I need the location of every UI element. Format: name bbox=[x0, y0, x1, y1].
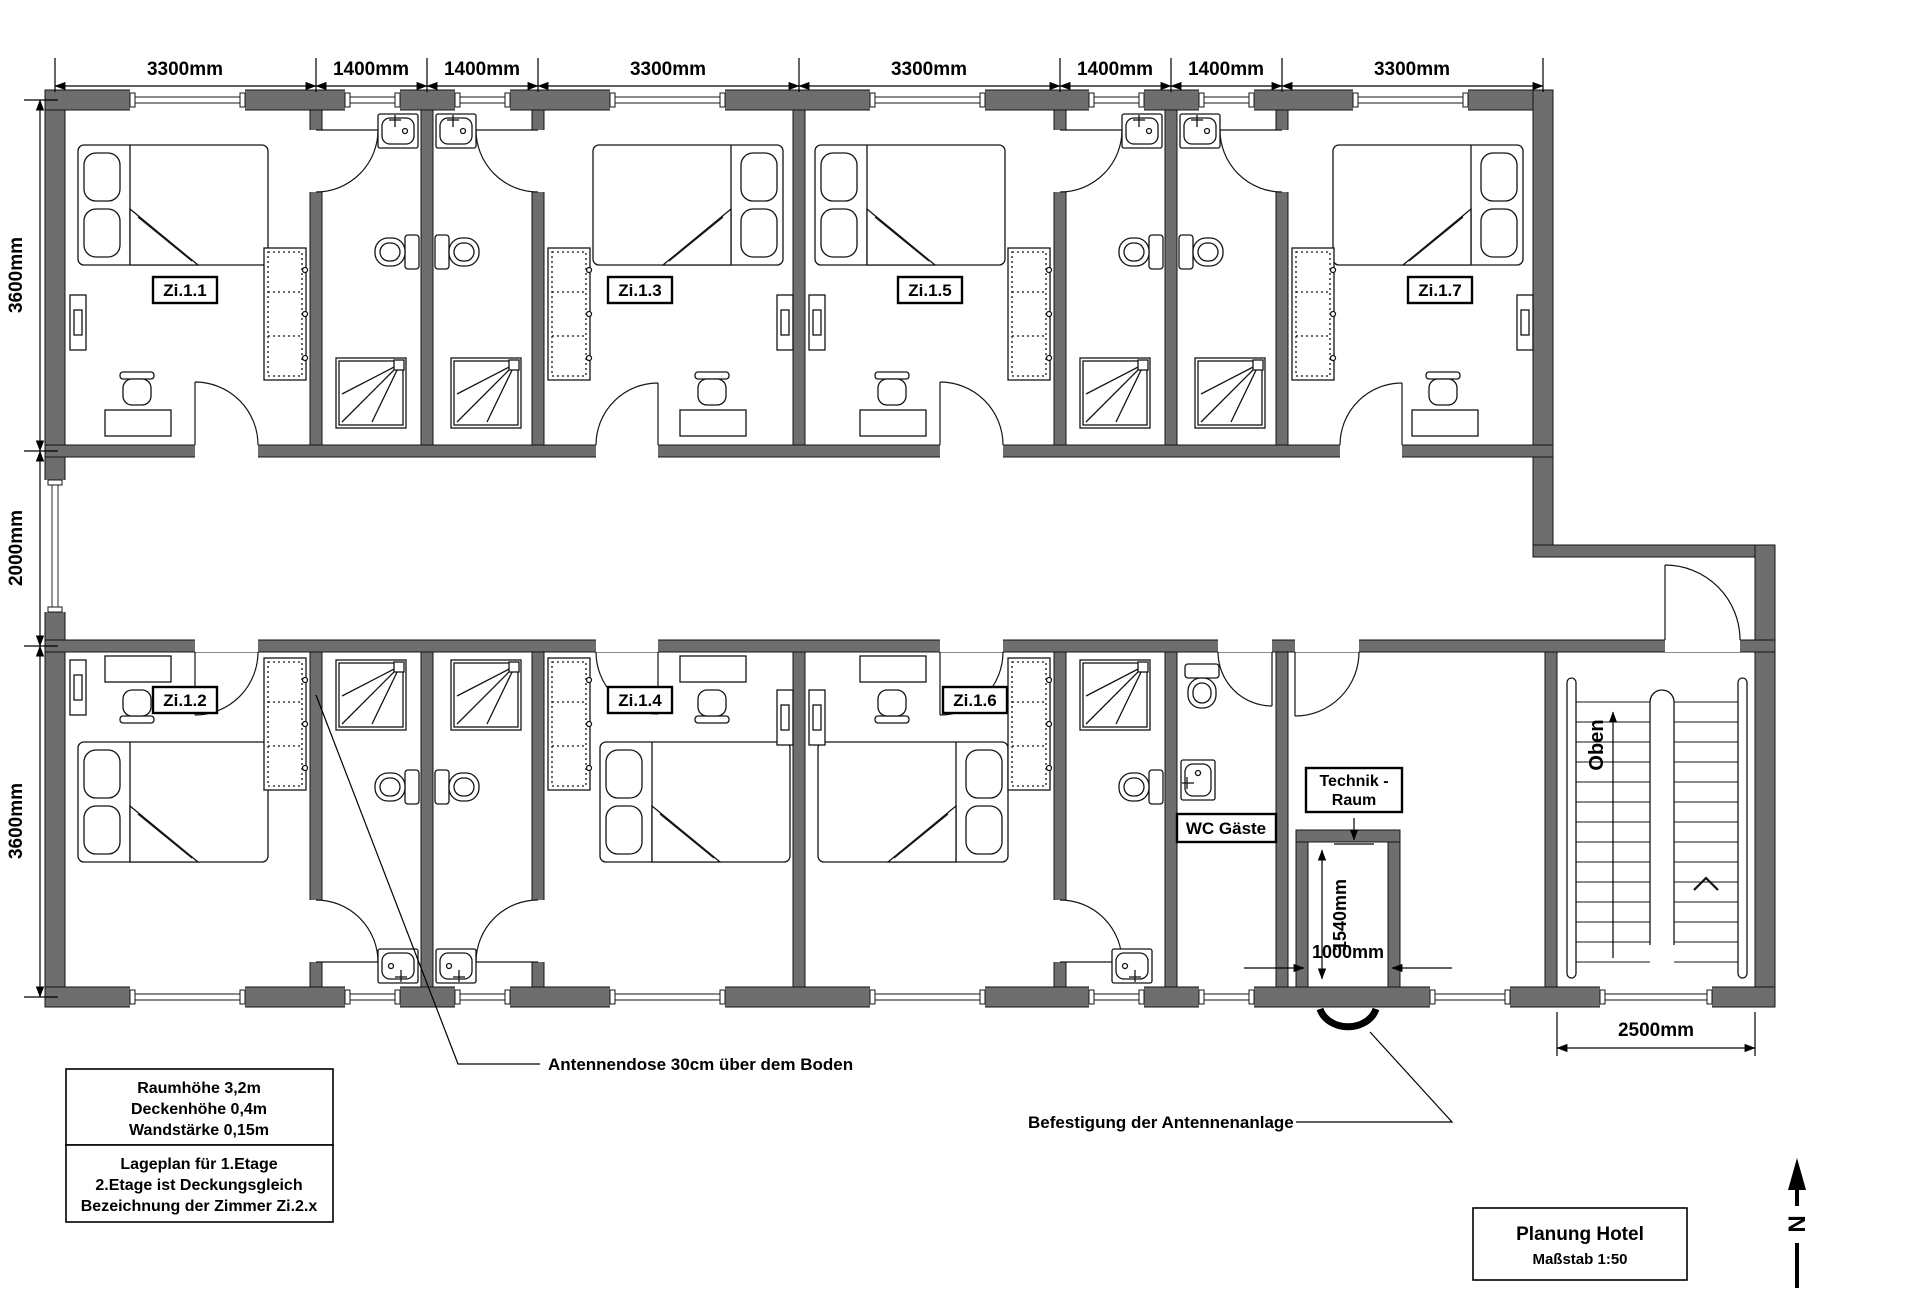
tv-board bbox=[70, 660, 86, 715]
drawing-scale: Maßstab 1:50 bbox=[1532, 1251, 1627, 1268]
tv-board bbox=[777, 690, 793, 745]
dim-left-1: 3600mm bbox=[6, 237, 27, 313]
window bbox=[610, 986, 725, 1008]
bathroom bbox=[435, 660, 521, 983]
desk bbox=[860, 410, 926, 436]
bathroom bbox=[336, 114, 419, 428]
toilet bbox=[435, 770, 479, 804]
bed bbox=[818, 742, 1008, 862]
window bbox=[1089, 986, 1144, 1008]
dim-top-5: 3300mm bbox=[891, 59, 967, 80]
bed bbox=[815, 145, 1005, 265]
window bbox=[455, 89, 510, 111]
window bbox=[1430, 986, 1510, 1008]
wardrobe bbox=[1008, 658, 1052, 790]
bathroom bbox=[1080, 114, 1163, 428]
room-zi14: Zi.1.4 bbox=[548, 656, 793, 862]
wall-stairwell-west bbox=[1545, 652, 1557, 987]
tv-board bbox=[777, 295, 793, 350]
tv-board bbox=[809, 690, 825, 745]
shower bbox=[451, 358, 521, 428]
room-label: Zi.1.4 bbox=[618, 691, 662, 710]
bathroom bbox=[1080, 660, 1163, 983]
window bbox=[345, 89, 400, 111]
room-zi17: Zi.1.7 bbox=[1292, 145, 1533, 436]
stair-rail-left bbox=[1567, 678, 1576, 978]
floorplan-drawing: Zi.1.1 Zi.1.3 Zi.1.5 Zi.1.7 Zi.1.2 Zi.1.… bbox=[0, 0, 1906, 1310]
door-bath bbox=[309, 130, 378, 192]
desk bbox=[680, 656, 746, 682]
dim-top-7: 1400mm bbox=[1188, 59, 1264, 80]
room-zi16: Zi.1.6 bbox=[809, 656, 1052, 862]
room-label: Zi.1.2 bbox=[163, 691, 206, 710]
bed bbox=[78, 742, 268, 862]
window bbox=[130, 986, 245, 1008]
north-label: N bbox=[1784, 1215, 1811, 1232]
wardrobe bbox=[1008, 248, 1052, 380]
toilet bbox=[435, 235, 479, 269]
dim-top-2: 1400mm bbox=[333, 59, 409, 80]
stairwell: Oben bbox=[1567, 678, 1747, 978]
dim-top-8: 3300mm bbox=[1374, 59, 1450, 80]
wall-shaft-left bbox=[1296, 842, 1308, 987]
door-zi11 bbox=[195, 382, 258, 458]
chair bbox=[695, 690, 729, 723]
wall-exterior-right-wing bbox=[1755, 545, 1775, 1007]
shower bbox=[1080, 358, 1150, 428]
north-arrow-head bbox=[1788, 1158, 1806, 1190]
annotation-text: Antennendose 30cm über dem Boden bbox=[548, 1055, 853, 1074]
door-bath bbox=[476, 900, 545, 962]
dim-left-3: 3600mm bbox=[6, 783, 27, 859]
toilet bbox=[1179, 235, 1223, 269]
shower bbox=[1080, 660, 1150, 730]
room-label: Zi.1.7 bbox=[1418, 281, 1461, 300]
chair bbox=[120, 372, 154, 405]
wall-shaft-right bbox=[1388, 842, 1400, 987]
desk bbox=[1412, 410, 1478, 436]
window bbox=[1089, 89, 1144, 111]
wall-partition bbox=[421, 110, 433, 445]
sink bbox=[378, 114, 418, 148]
desk bbox=[680, 410, 746, 436]
note-line: Raumhöhe 3,2m bbox=[137, 1080, 261, 1097]
notes-box-room-specs: Raumhöhe 3,2m Deckenhöhe 0,4m Wandstärke… bbox=[66, 1069, 333, 1145]
note-line: Bezeichnung der Zimmer Zi.2.x bbox=[81, 1198, 318, 1215]
window bbox=[345, 986, 400, 1008]
room-label: Zi.1.5 bbox=[908, 281, 951, 300]
stairs-direction-label: Oben bbox=[1586, 719, 1608, 770]
window bbox=[44, 480, 66, 612]
dim-top-6: 1400mm bbox=[1077, 59, 1153, 80]
wall-exterior-right-upper bbox=[1533, 90, 1553, 557]
tv-board bbox=[1517, 295, 1533, 350]
shower bbox=[336, 358, 406, 428]
dim-stairwell-width: 2500mm bbox=[1618, 1020, 1694, 1041]
toilet bbox=[1119, 770, 1163, 804]
note-line: Deckenhöhe 0,4m bbox=[131, 1101, 267, 1118]
wall-partition bbox=[793, 110, 805, 445]
wall-partition bbox=[421, 652, 433, 987]
wall-shaft-top bbox=[1296, 830, 1400, 842]
antenna-mount-arc bbox=[1320, 1009, 1376, 1027]
room-label-line2: Raum bbox=[1332, 792, 1376, 809]
shaft-height-dim: 1540mm bbox=[1330, 879, 1350, 951]
sink bbox=[1112, 949, 1152, 983]
room-label: WC Gäste bbox=[1186, 819, 1266, 838]
chair bbox=[875, 690, 909, 723]
bed bbox=[78, 145, 268, 265]
wardrobe bbox=[548, 658, 592, 790]
toilet bbox=[1185, 664, 1219, 708]
door-bath bbox=[309, 900, 378, 962]
wall-partition bbox=[1165, 652, 1177, 987]
sink bbox=[436, 949, 476, 983]
wardrobe bbox=[548, 248, 592, 380]
door-bath bbox=[1220, 130, 1289, 192]
door-bath bbox=[476, 130, 545, 192]
chair bbox=[695, 372, 729, 405]
wall-exterior-top bbox=[45, 90, 1553, 110]
note-line: Lageplan für 1.Etage bbox=[120, 1156, 277, 1173]
toilet bbox=[1119, 235, 1163, 269]
room-zi12: Zi.1.2 bbox=[70, 656, 308, 862]
room-label: Zi.1.6 bbox=[953, 691, 996, 710]
door-zi15 bbox=[940, 382, 1003, 458]
shower bbox=[451, 660, 521, 730]
stair-rail-center bbox=[1650, 690, 1674, 945]
drawing-title: Planung Hotel bbox=[1516, 1224, 1644, 1245]
sink bbox=[1122, 114, 1162, 148]
room-zi13: Zi.1.3 bbox=[548, 145, 793, 436]
title-block: Planung Hotel Maßstab 1:50 bbox=[1473, 1208, 1687, 1280]
annotation-antenna-mount: Befestigung der Antennenanlage bbox=[1028, 1032, 1452, 1132]
north-arrow: N bbox=[1784, 1158, 1811, 1288]
bathroom bbox=[1179, 114, 1265, 428]
window bbox=[870, 986, 985, 1008]
window bbox=[1199, 89, 1254, 111]
wall-corridor-south bbox=[45, 640, 1775, 652]
wardrobe bbox=[264, 248, 308, 380]
window bbox=[870, 89, 985, 111]
wardrobe bbox=[264, 658, 308, 790]
room-zi11: Zi.1.1 bbox=[70, 145, 308, 436]
shaft-width-dim: 1000mm bbox=[1312, 942, 1384, 962]
window bbox=[130, 89, 245, 111]
wall-partition bbox=[1165, 110, 1177, 445]
window bbox=[455, 986, 510, 1008]
note-line: 2.Etage ist Deckungsgleich bbox=[95, 1177, 302, 1194]
window bbox=[1600, 986, 1712, 1008]
wardrobe bbox=[1292, 248, 1336, 380]
window bbox=[610, 89, 725, 111]
sink bbox=[378, 949, 418, 983]
room-wc-guests: WC Gäste bbox=[1177, 664, 1276, 842]
window bbox=[1353, 89, 1468, 111]
bed bbox=[1333, 145, 1523, 265]
shower bbox=[1195, 358, 1265, 428]
wall-corridor-north bbox=[45, 445, 1553, 457]
dim-top-3: 1400mm bbox=[444, 59, 520, 80]
annotation-text: Befestigung der Antennenanlage bbox=[1028, 1113, 1294, 1132]
floorplan-canvas: Zi.1.1 Zi.1.3 Zi.1.5 Zi.1.7 Zi.1.2 Zi.1.… bbox=[0, 0, 1906, 1310]
window bbox=[1199, 986, 1254, 1008]
sink bbox=[1180, 114, 1220, 148]
wall-partition bbox=[1276, 652, 1288, 987]
toilet bbox=[375, 770, 419, 804]
sink bbox=[436, 114, 476, 148]
room-label: Zi.1.3 bbox=[618, 281, 661, 300]
door-technik bbox=[1295, 638, 1359, 716]
note-line: Wandstärke 0,15m bbox=[129, 1122, 269, 1139]
leader-line bbox=[1296, 1032, 1452, 1122]
stair-rail-right bbox=[1738, 678, 1747, 978]
tv-board bbox=[70, 295, 86, 350]
bathroom bbox=[435, 114, 521, 428]
bed bbox=[593, 145, 783, 265]
sink bbox=[1181, 760, 1215, 800]
door-zi13 bbox=[596, 383, 658, 458]
desk bbox=[860, 656, 926, 682]
door-zi17 bbox=[1340, 383, 1402, 458]
room-zi15: Zi.1.5 bbox=[809, 145, 1052, 436]
chair bbox=[1426, 372, 1460, 405]
door-stairwell-entrance bbox=[1665, 565, 1740, 652]
bathroom bbox=[336, 660, 419, 983]
desk bbox=[105, 410, 171, 436]
dimension-stairwell-width: 2500mm bbox=[1557, 1012, 1755, 1056]
toilet bbox=[375, 235, 419, 269]
desk bbox=[105, 656, 171, 682]
notes-box-floor-info: Lageplan für 1.Etage 2.Etage ist Deckung… bbox=[66, 1145, 333, 1222]
dim-left-2: 2000mm bbox=[6, 510, 27, 586]
dim-top-4: 3300mm bbox=[630, 59, 706, 80]
wall-partition bbox=[793, 652, 805, 987]
dim-top-1: 3300mm bbox=[147, 59, 223, 80]
door-bath bbox=[1053, 130, 1122, 192]
chair bbox=[875, 372, 909, 405]
room-label-line1: Technik - bbox=[1319, 773, 1388, 790]
door-wc bbox=[1218, 638, 1272, 706]
wall-stub-north bbox=[1533, 545, 1775, 557]
stair-direction-chevron bbox=[1694, 878, 1718, 890]
tv-board bbox=[809, 295, 825, 350]
shower bbox=[336, 660, 406, 730]
dimension-chain-top: 3300mm 1400mm 1400mm 3300mm 3300mm 1400m… bbox=[55, 58, 1543, 92]
chair bbox=[120, 690, 154, 723]
bed bbox=[600, 742, 790, 862]
room-label: Zi.1.1 bbox=[163, 281, 206, 300]
